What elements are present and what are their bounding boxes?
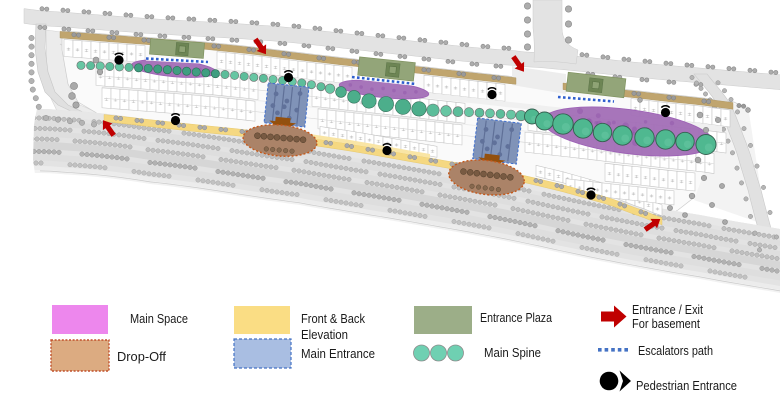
svg-text:Main Space: Main Space bbox=[130, 311, 188, 326]
svg-text:Elevation: Elevation bbox=[301, 327, 348, 342]
svg-text:Main Spine: Main Spine bbox=[484, 345, 541, 360]
svg-text:Main Entrance: Main Entrance bbox=[301, 346, 375, 361]
svg-text:Entrance / Exit: Entrance / Exit bbox=[632, 302, 703, 317]
svg-text:Entrance Plaza: Entrance Plaza bbox=[480, 310, 553, 325]
svg-text:Front & Back: Front & Back bbox=[301, 311, 365, 326]
svg-text:Escalators path: Escalators path bbox=[638, 343, 713, 358]
svg-text:Pedestrian Entrance: Pedestrian Entrance bbox=[636, 378, 737, 393]
svg-text:For basement: For basement bbox=[632, 316, 700, 331]
svg-text:Drop-Off: Drop-Off bbox=[117, 349, 166, 364]
